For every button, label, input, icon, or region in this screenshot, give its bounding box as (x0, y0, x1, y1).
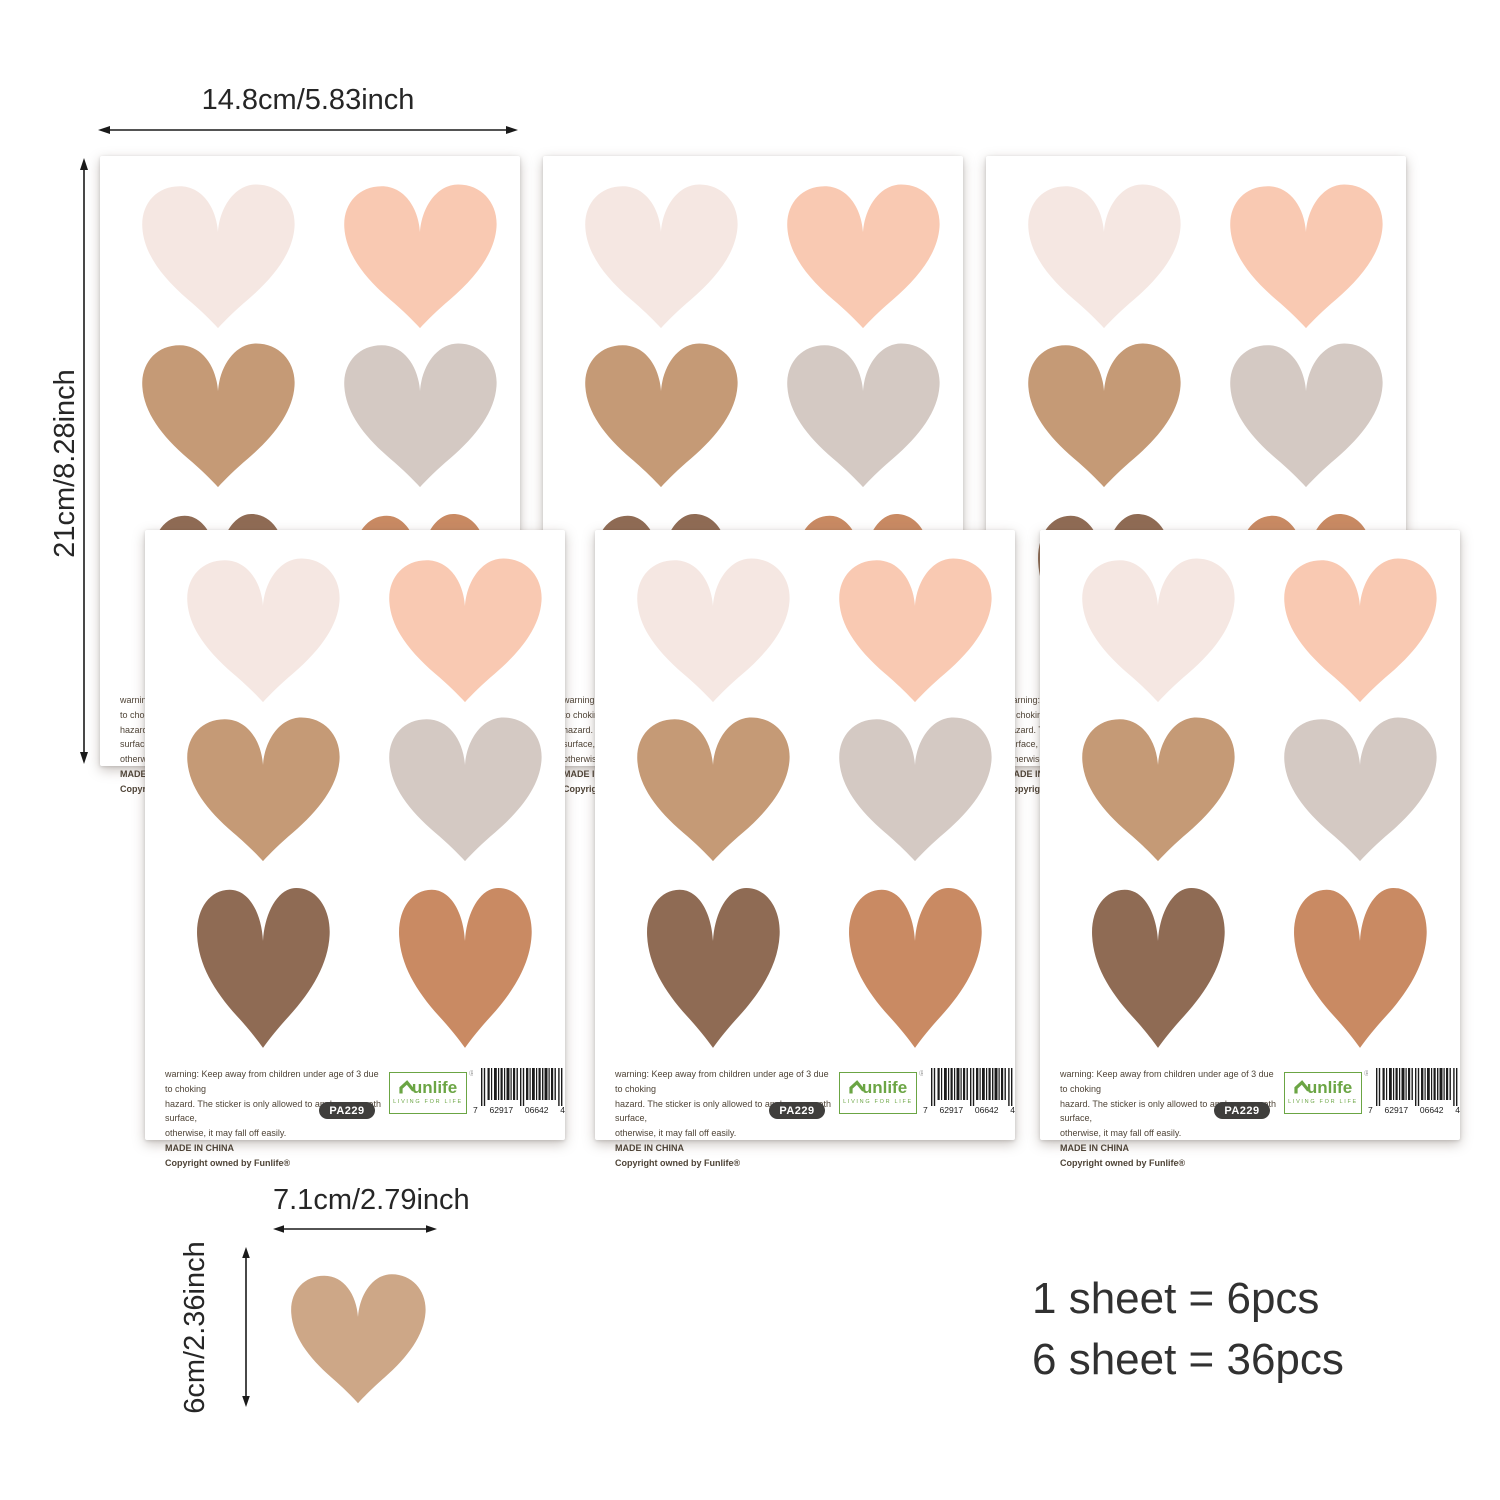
heart-shape (399, 888, 532, 1048)
copyright-text: Copyright owned by Funlife® (615, 1156, 835, 1171)
count-line-1: 1 sheet = 6pcs (1032, 1268, 1344, 1329)
heart-shape (389, 718, 541, 862)
sheet-height-arrow (77, 158, 91, 764)
warning-line: otherwise, it may fall off easily. (165, 1126, 385, 1141)
heart-sticker-cream (1019, 172, 1189, 339)
heart-shape (787, 344, 939, 488)
sample-heart-sticker (283, 1263, 433, 1413)
barcode-digit-group: 4 (1010, 1105, 1015, 1116)
logo-row: unlife (1285, 1077, 1361, 1096)
barcode-digit-group: 7 (923, 1105, 928, 1116)
heart-sticker-gray (778, 331, 948, 498)
barcode: 7 62917 06642 4 (473, 1068, 565, 1118)
logo-row: unlife (390, 1077, 466, 1096)
sku-badge: PA229 (1214, 1102, 1270, 1119)
heart-shape (1082, 559, 1234, 703)
heart-sticker-tan (576, 331, 746, 498)
funlife-logo: ® unlife LIVING FOR LIFE (839, 1072, 917, 1114)
heart-shape (637, 559, 789, 703)
heart-sticker-peach (1221, 172, 1391, 339)
barcode-digit-group: 06642 (525, 1105, 549, 1116)
warning-line: warning: Keep away from children under a… (165, 1067, 385, 1097)
barcode: 7 62917 06642 4 (1368, 1068, 1460, 1118)
heart-shape (142, 185, 294, 329)
heart-shape (1092, 888, 1225, 1048)
barcode-digit-group: 62917 (489, 1105, 513, 1116)
heart-sticker-gray (830, 705, 1000, 872)
heart-sticker-terracotta (391, 874, 539, 1060)
heart-sticker-tan (1073, 705, 1243, 872)
heart-sticker-peach (1275, 546, 1445, 713)
barcode-digits: 7 62917 06642 4 (923, 1105, 1015, 1116)
heart-shape (787, 185, 939, 329)
logo-row: unlife (840, 1077, 916, 1096)
heart-sticker-cream (628, 546, 798, 713)
heart-shape (344, 185, 496, 329)
brand-tagline: LIVING FOR LIFE (1285, 1099, 1361, 1105)
heart-sticker-brown (639, 874, 787, 1060)
count-line-2: 6 sheet = 36pcs (1032, 1329, 1344, 1390)
heart-sticker-cream (576, 172, 746, 339)
barcode-bars-icon (481, 1068, 563, 1106)
heart-sticker-gray (380, 705, 550, 872)
copyright-text: Copyright owned by Funlife® (165, 1156, 385, 1171)
heart-shape (647, 888, 780, 1048)
barcode-digit-group: 7 (473, 1105, 478, 1116)
heart-shape (187, 718, 339, 862)
heart-height-label: 6cm/2.36inch (179, 1241, 212, 1414)
heart-sticker-tan (178, 705, 348, 872)
sticker-sheet: warning: Keep away from children under a… (1040, 530, 1460, 1140)
funlife-logo: ® unlife LIVING FOR LIFE (389, 1072, 467, 1114)
funlife-logo: ® unlife LIVING FOR LIFE (1284, 1072, 1362, 1114)
heart-sticker-terracotta (841, 874, 989, 1060)
heart-width-label: 7.1cm/2.79inch (273, 1184, 437, 1217)
warning-line: otherwise, it may fall off easily. (1060, 1126, 1280, 1141)
heart-shape (1082, 718, 1234, 862)
heart-sticker-gray (335, 331, 505, 498)
barcode-digit-group: 62917 (1384, 1105, 1408, 1116)
heart-shape (585, 185, 737, 329)
heart-shape (839, 718, 991, 862)
made-in-text: MADE IN CHINA (615, 1141, 835, 1156)
heart-sticker-terracotta (1286, 874, 1434, 1060)
barcode-digits: 7 62917 06642 4 (473, 1105, 565, 1116)
heart-sticker-peach (335, 172, 505, 339)
heart-sticker-gray (1221, 331, 1391, 498)
heart-shape (291, 1274, 425, 1403)
warning-line: warning: Keep away from children under a… (1060, 1067, 1280, 1097)
heart-shape (142, 344, 294, 488)
heart-shape (1028, 344, 1180, 488)
heart-sticker-peach (380, 546, 550, 713)
warning-line: otherwise, it may fall off easily. (615, 1126, 835, 1141)
brand-text: unlife (412, 1079, 457, 1096)
sticker-sheet: warning: Keep away from children under a… (145, 530, 565, 1140)
piece-count-text: 1 sheet = 6pcs 6 sheet = 36pcs (1032, 1268, 1344, 1390)
heart-shape (849, 888, 982, 1048)
barcode-digit-group: 06642 (975, 1105, 999, 1116)
heart-shape (1294, 888, 1427, 1048)
heart-shape (585, 344, 737, 488)
barcode-digit-group: 62917 (939, 1105, 963, 1116)
heart-shape (1230, 185, 1382, 329)
heart-shape (344, 344, 496, 488)
heart-sticker-brown (1084, 874, 1232, 1060)
brand-tagline: LIVING FOR LIFE (840, 1099, 916, 1105)
warning-line: warning: Keep away from children under a… (615, 1067, 835, 1097)
barcode-digits: 7 62917 06642 4 (1368, 1105, 1460, 1116)
heart-shape (1284, 718, 1436, 862)
brand-text: unlife (1307, 1079, 1352, 1096)
heart-height-label-wrap: 6cm/2.36inch (178, 1247, 212, 1407)
heart-sticker-peach (830, 546, 1000, 713)
product-diagram: 14.8cm/5.83inch 21cm/8.28inch (0, 0, 1500, 1500)
heart-sticker-cream (1073, 546, 1243, 713)
heart-sticker-cream (133, 172, 303, 339)
barcode-bars-icon (1376, 1068, 1458, 1106)
heart-sticker-cream (178, 546, 348, 713)
barcode-digit-group: 4 (560, 1105, 565, 1116)
barcode-digit-group: 4 (1455, 1105, 1460, 1116)
sticker-sheet: warning: Keep away from children under a… (595, 530, 1015, 1140)
barcode-bars-icon (931, 1068, 1013, 1106)
copyright-text: Copyright owned by Funlife® (1060, 1156, 1280, 1171)
heart-shape (1230, 344, 1382, 488)
heart-sticker-tan (1019, 331, 1189, 498)
heart-shape (839, 559, 991, 703)
heart-shape (389, 559, 541, 703)
made-in-text: MADE IN CHINA (1060, 1141, 1280, 1156)
heart-shape (1284, 559, 1436, 703)
heart-height-arrow (239, 1247, 253, 1407)
heart-shape (637, 718, 789, 862)
heart-shape (1028, 185, 1180, 329)
barcode-digit-group: 06642 (1420, 1105, 1444, 1116)
made-in-text: MADE IN CHINA (165, 1141, 385, 1156)
heart-sticker-peach (778, 172, 948, 339)
heart-sticker-tan (133, 331, 303, 498)
heart-sticker-brown (189, 874, 337, 1060)
heart-shape (187, 559, 339, 703)
heart-sticker-tan (628, 705, 798, 872)
sheet-width-arrow (98, 123, 518, 137)
heart-width-arrow (273, 1222, 437, 1236)
barcode: 7 62917 06642 4 (923, 1068, 1015, 1118)
brand-tagline: LIVING FOR LIFE (390, 1099, 466, 1105)
sku-badge: PA229 (319, 1102, 375, 1119)
heart-sticker-gray (1275, 705, 1445, 872)
heart-shape (197, 888, 330, 1048)
brand-text: unlife (862, 1079, 907, 1096)
barcode-digit-group: 7 (1368, 1105, 1373, 1116)
sku-badge: PA229 (769, 1102, 825, 1119)
sheet-width-label: 14.8cm/5.83inch (98, 84, 518, 117)
